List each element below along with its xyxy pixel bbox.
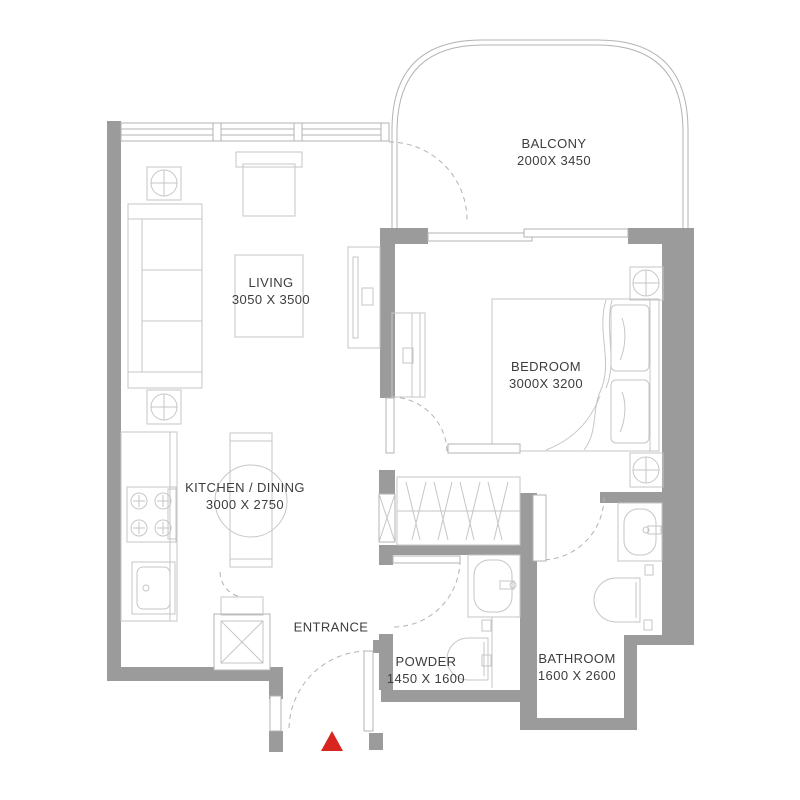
bathroom-door-leaf [533,495,546,561]
bathroom-vanity [618,503,662,561]
bathroom-toilet [594,565,653,630]
nightstand-lamp-bottom [630,453,663,487]
balcony-outline [392,40,688,228]
entrance-door-arc [289,651,368,730]
wardrobe-closet [397,477,520,545]
bedroom-door-leaf [386,398,394,453]
floor-plan: BALCONY2000X 3450 LIVING3050 X 3500 BEDR… [0,0,800,800]
utility-box [214,597,270,670]
powder-label: POWDER1450 X 1600 [387,654,465,688]
kitchen-sink [132,562,175,614]
armchair [236,152,302,216]
powder-door-arc [393,560,460,627]
kitchen-label: KITCHEN / DINING3000 X 2750 [185,480,305,514]
kitchen-cabinet-arc [220,572,243,597]
entrance-marker-icon [321,731,343,751]
side-panel [270,696,281,731]
bedroom-sliding-door [428,229,628,241]
bedroom-label: BEDROOM3000X 3200 [509,359,583,393]
bedroom-door-arc [391,397,447,453]
entrance-label: ENTRANCE [294,620,369,637]
stove [127,487,176,542]
dresser [392,313,425,397]
sofa [128,204,202,388]
balcony-label: BALCONY2000X 3450 [517,136,591,170]
corridor-partition [448,444,520,453]
balcony-door-arc [389,142,467,220]
powder-vanity [468,555,520,617]
side-table-lamp-bottom [147,390,181,424]
entrance-door-leaf [364,651,373,731]
powder-door-leaf [393,556,460,563]
kitchen-counter [121,432,177,621]
side-table-lamp-top [147,167,181,200]
tv-unit [348,247,380,348]
nightstand-lamp-top [630,267,663,300]
living-label: LIVING3050 X 3500 [232,275,310,309]
shaft-box [379,494,395,542]
bathroom-label: BATHROOM1600 X 2600 [538,651,616,685]
living-window [121,123,389,141]
bathroom-door-arc [541,497,604,560]
